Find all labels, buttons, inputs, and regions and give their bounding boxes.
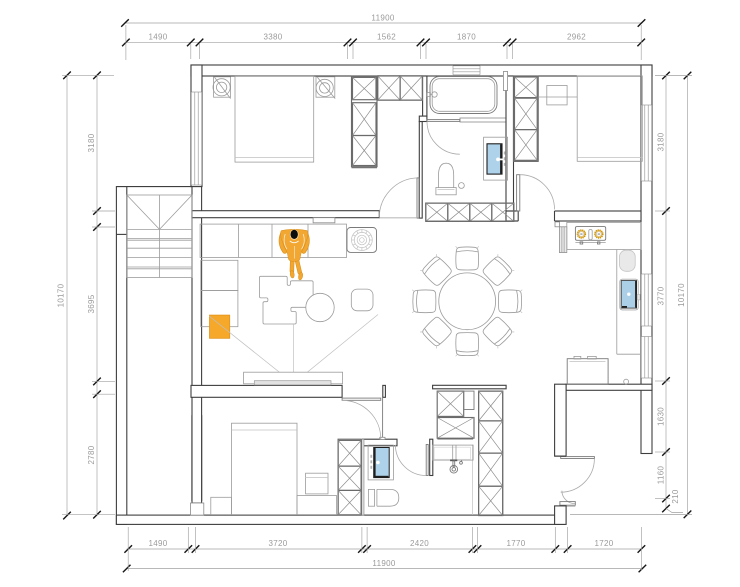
svg-text:3180: 3180 — [657, 132, 666, 151]
svg-text:1490: 1490 — [149, 32, 168, 41]
svg-text:1770: 1770 — [507, 539, 526, 548]
svg-text:1720: 1720 — [595, 539, 614, 548]
svg-text:3695: 3695 — [87, 294, 96, 313]
svg-text:2962: 2962 — [567, 32, 586, 41]
svg-text:210: 210 — [671, 489, 680, 503]
svg-text:3380: 3380 — [264, 32, 283, 41]
svg-text:11900: 11900 — [372, 559, 395, 568]
svg-text:1490: 1490 — [149, 539, 168, 548]
svg-text:2780: 2780 — [87, 445, 96, 464]
svg-text:3770: 3770 — [657, 286, 666, 305]
svg-text:3180: 3180 — [87, 133, 96, 152]
svg-text:1630: 1630 — [657, 407, 666, 426]
svg-text:3720: 3720 — [269, 539, 288, 548]
svg-text:10170: 10170 — [677, 283, 686, 307]
svg-text:10170: 10170 — [57, 283, 66, 307]
svg-text:11900: 11900 — [371, 14, 394, 23]
svg-text:1562: 1562 — [377, 32, 396, 41]
svg-text:1870: 1870 — [457, 32, 476, 41]
svg-text:1160: 1160 — [657, 466, 666, 485]
svg-text:2420: 2420 — [410, 539, 429, 548]
